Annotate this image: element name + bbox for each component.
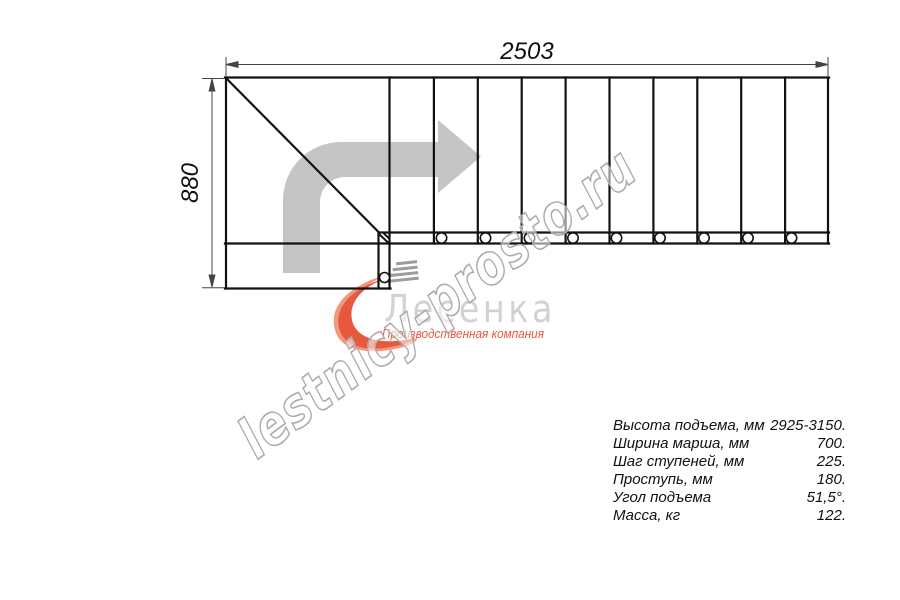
spec-row-width: Ширина марша, мм 700. (613, 435, 846, 453)
spec-label: Проступь, мм (613, 471, 713, 489)
spec-value: 700. (817, 435, 846, 453)
spec-row-tread: Проступь, мм 180. (613, 471, 846, 489)
dimension-top: 2503 (226, 38, 828, 76)
spec-value: 225. (817, 453, 846, 471)
dim-arrow-up-icon (209, 79, 215, 91)
top-dimension-value: 2503 (499, 38, 554, 65)
staircase-drawing-page: Лесенка Производственная компания (0, 0, 900, 600)
spec-label: Угол подъема (613, 489, 711, 507)
dim-arrow-left-icon (226, 62, 238, 68)
spec-table: Высота подъема, мм 2925-3150. Ширина мар… (613, 417, 846, 525)
direction-arrow (283, 120, 481, 273)
spec-row-mass: Масса, кг 122. (613, 507, 846, 525)
left-dimension-value: 880 (177, 162, 204, 203)
spec-row-angle: Угол подъема 51,5°. (613, 489, 846, 507)
hatched-square (379, 233, 389, 243)
dim-arrow-down-icon (209, 275, 215, 287)
spec-label: Высота подъема, мм (613, 417, 765, 435)
spec-label: Масса, кг (613, 507, 680, 525)
spec-value: 180. (817, 471, 846, 489)
spec-value: 122. (817, 507, 846, 525)
dimension-left: 880 (177, 79, 224, 288)
spec-label: Шаг ступеней, мм (613, 453, 744, 471)
spec-row-height: Высота подъема, мм 2925-3150. (613, 417, 846, 435)
dim-arrow-right-icon (816, 62, 828, 68)
spec-row-step: Шаг ступеней, мм 225. (613, 453, 846, 471)
spec-label: Ширина марша, мм (613, 435, 749, 453)
spec-value: 51,5°. (807, 489, 846, 507)
spec-value: 2925-3150. (770, 417, 846, 435)
